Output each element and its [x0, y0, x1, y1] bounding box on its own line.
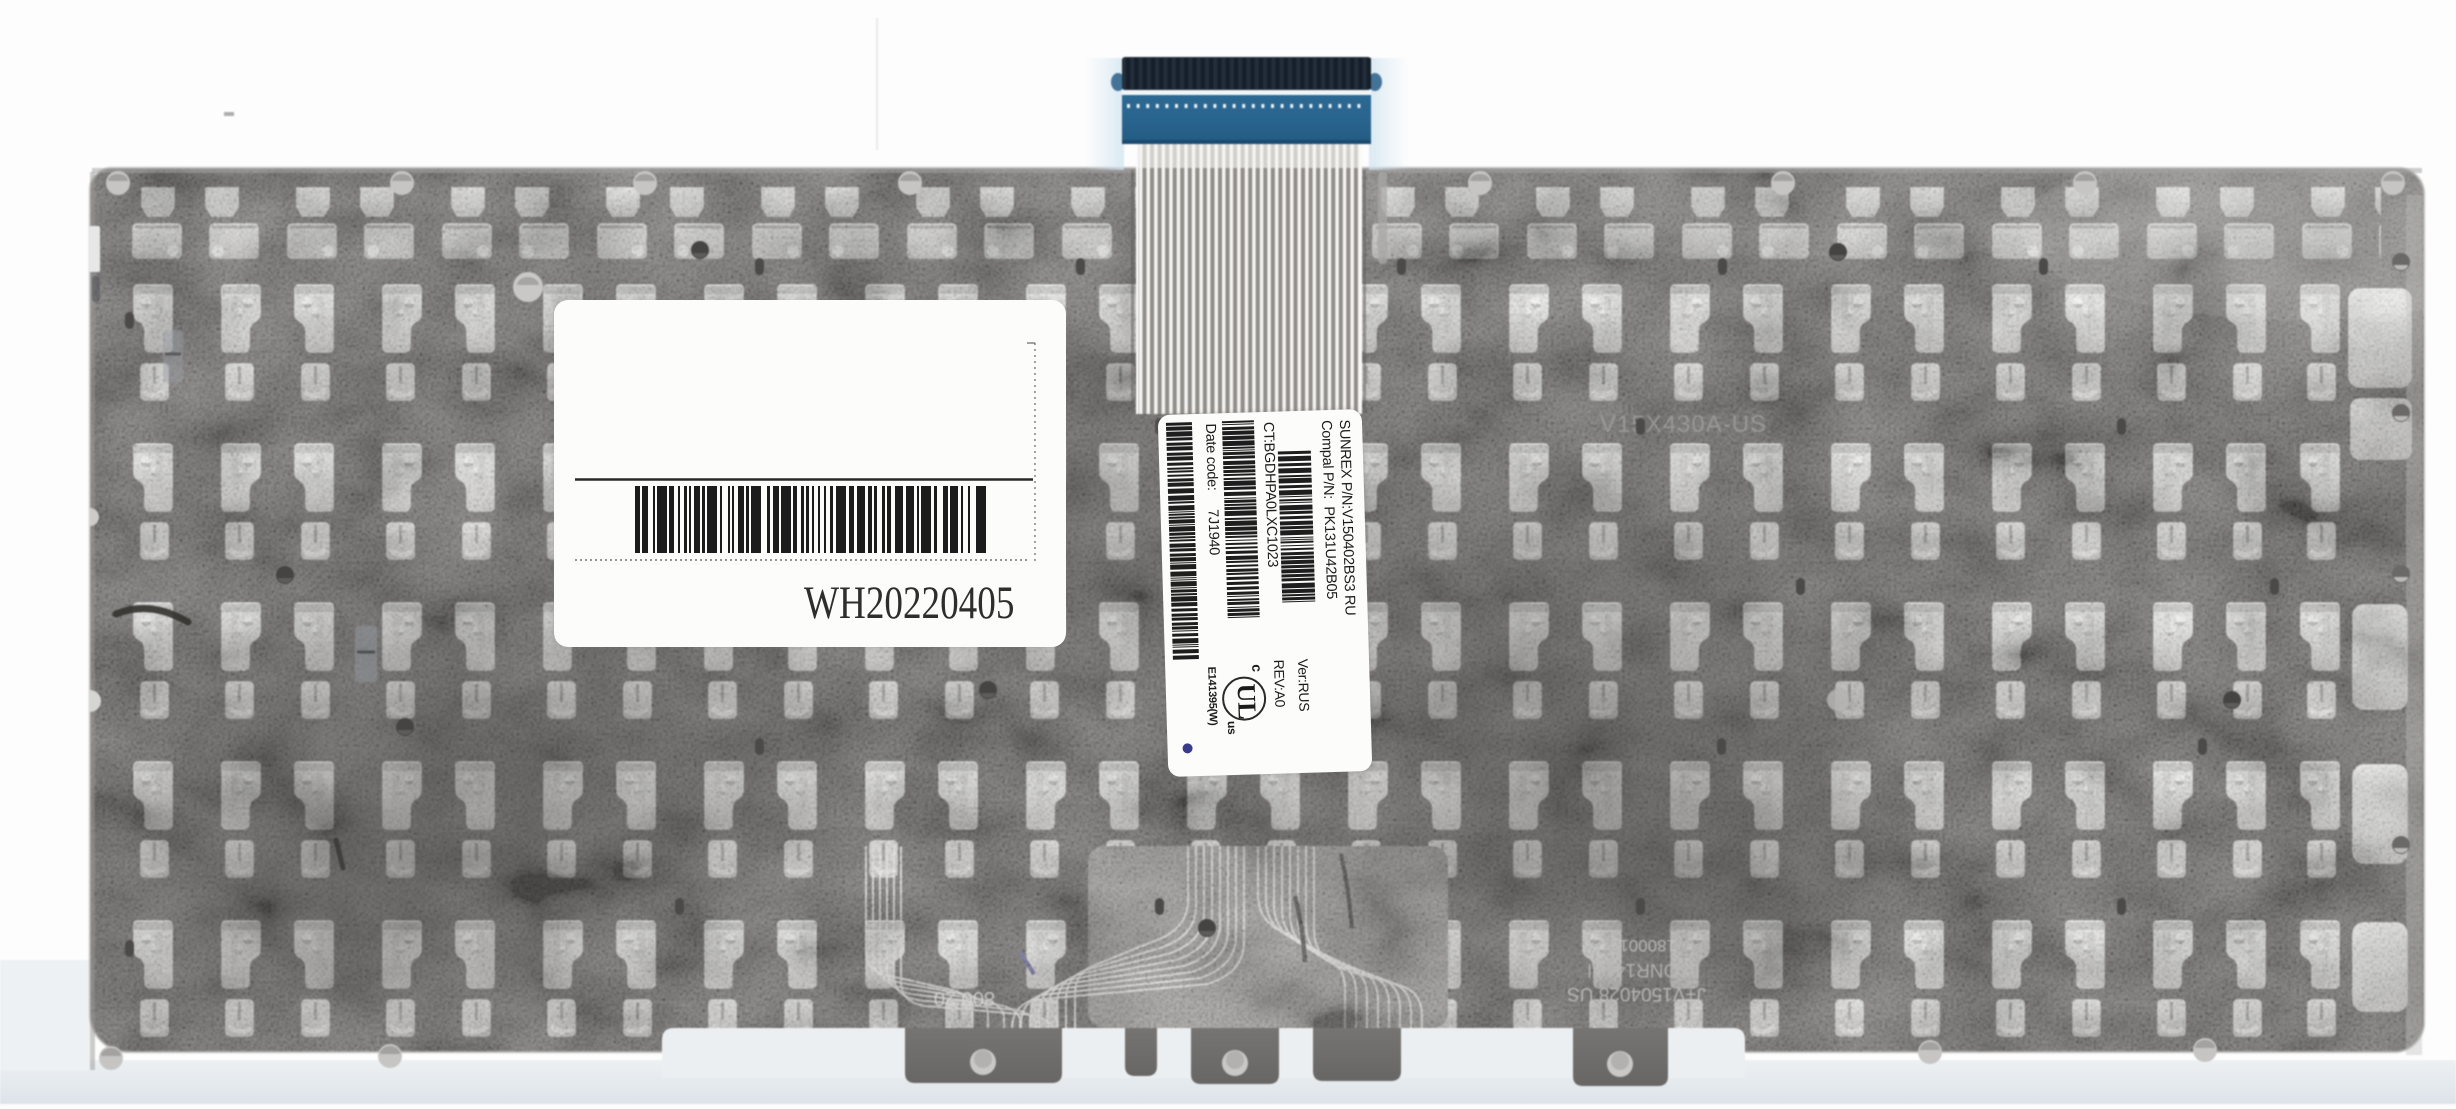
svg-text:SONR141Al: SONR141Al	[1588, 959, 1692, 980]
svg-text:800.20: 800.20	[934, 987, 995, 1009]
svg-text:J+V1504028 US: J+V1504028 US	[1567, 983, 1706, 1004]
svg-text:180001: 180001	[1619, 936, 1676, 955]
svg-text:V15X430A-US: V15X430A-US	[1600, 411, 1767, 438]
